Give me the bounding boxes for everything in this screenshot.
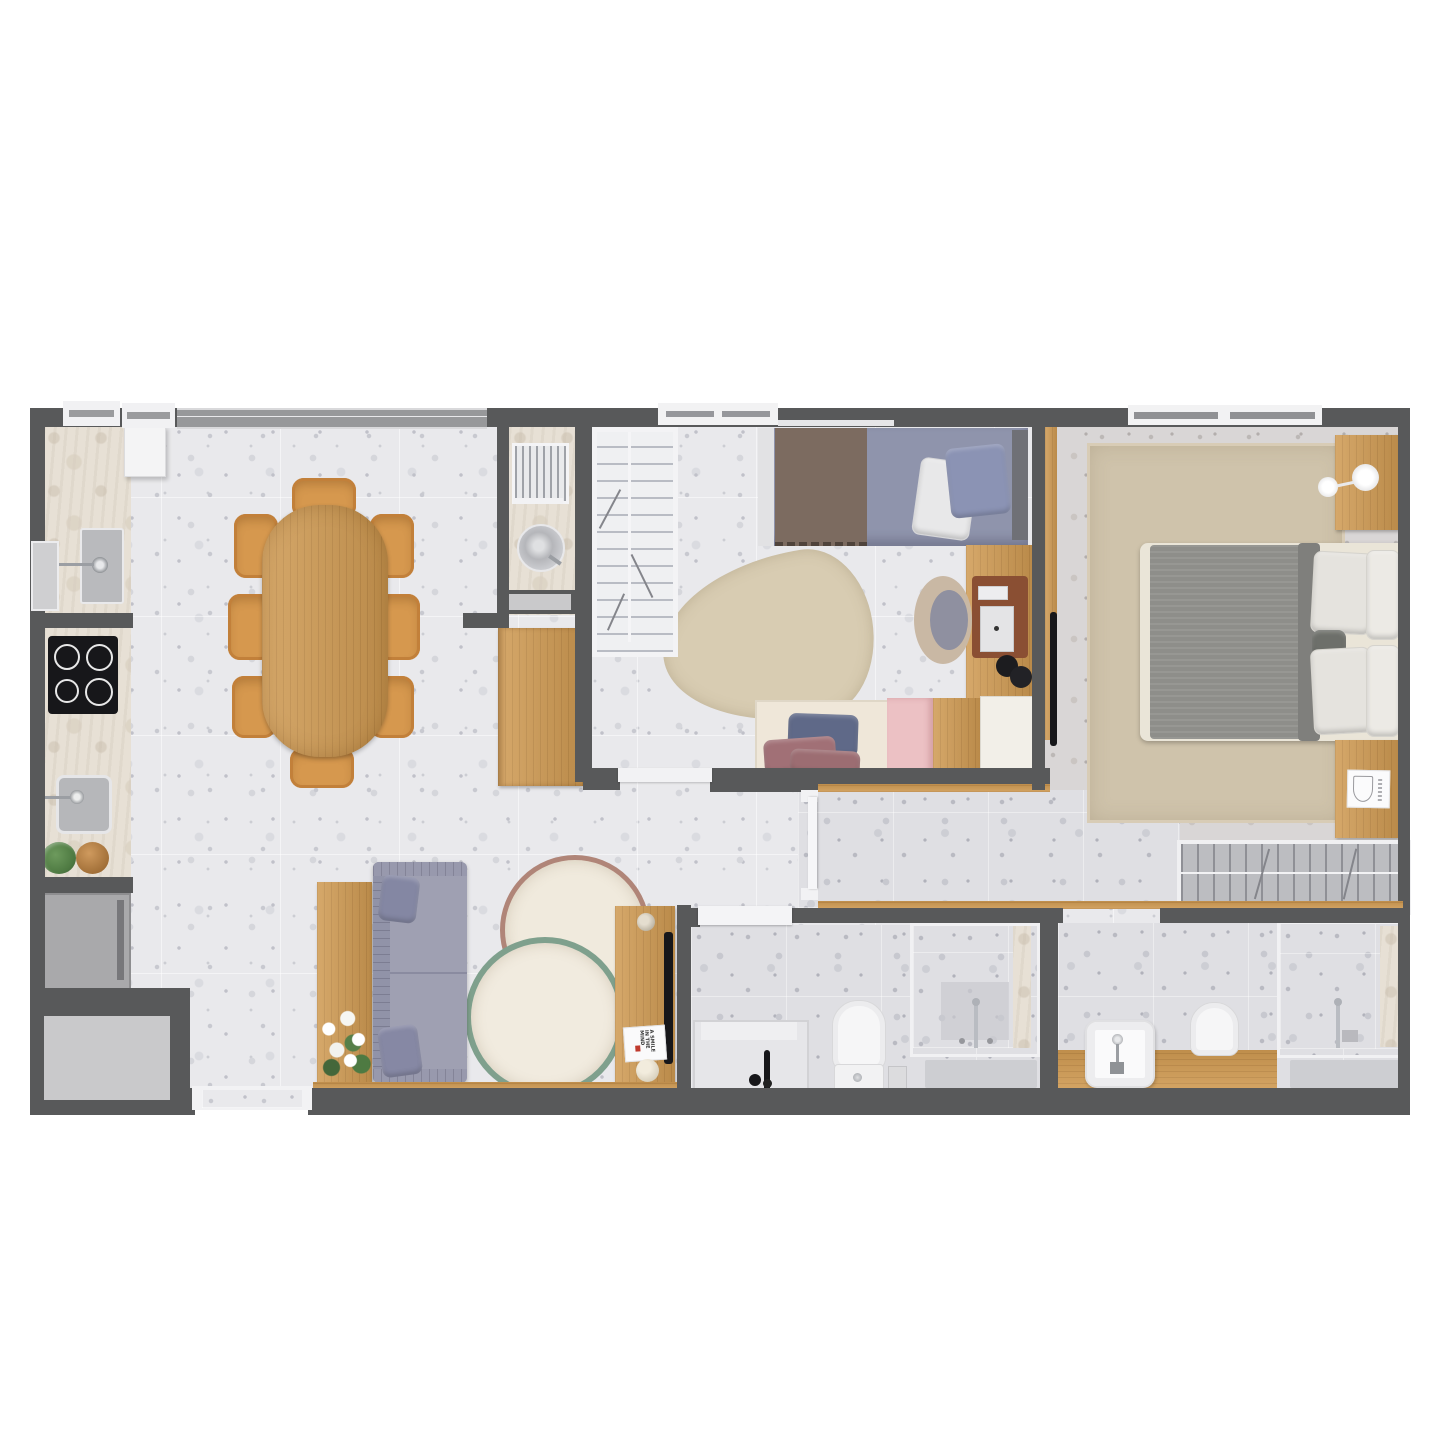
wall-stub-kitchen-2 — [30, 877, 133, 893]
wall-bottom-right — [308, 1088, 1410, 1115]
shelf-diagonal — [599, 489, 621, 529]
window-glass — [127, 412, 170, 419]
kids-bed-throw — [775, 428, 867, 546]
master-pillow — [1310, 646, 1374, 735]
master-pillow — [1366, 645, 1400, 737]
plant-icon — [42, 842, 76, 874]
toilet-2 — [1190, 1002, 1239, 1056]
prep-sink — [56, 775, 112, 834]
wall-hall-bottom-c — [1160, 908, 1410, 923]
wall-right — [1398, 408, 1410, 1110]
toilet — [832, 1000, 886, 1072]
kids-desk-chair-seat — [930, 590, 968, 650]
bathroom-1-door — [698, 906, 792, 925]
sofa-pillow — [377, 1023, 424, 1078]
wardrobe-rail — [1181, 872, 1399, 874]
floor-plan-canvas: A SMILE IN THE MIND — [0, 0, 1440, 1440]
wood-bowl-icon — [76, 842, 109, 874]
wall-stub-kitchen — [30, 613, 133, 628]
kids-pillow-blue — [945, 443, 1012, 519]
vessel-faucet-stem — [1116, 1044, 1119, 1064]
window-glass — [722, 411, 770, 417]
shower-1-handle-icon — [959, 1038, 965, 1044]
drying-rack-base — [513, 498, 563, 504]
wall-bath-divider — [1040, 923, 1058, 1092]
master-pillow — [1310, 550, 1374, 635]
book: A SMILE IN THE MIND — [623, 1025, 667, 1063]
refrigerator-handle — [117, 900, 124, 980]
kids-headboard — [1012, 430, 1028, 540]
master-window — [1128, 405, 1322, 425]
burner-icon — [55, 679, 79, 703]
print-card — [1347, 770, 1391, 809]
wall-lamp-icon — [1318, 477, 1338, 497]
kids-window — [658, 403, 778, 425]
shower-1-ledge — [1013, 926, 1031, 1048]
window-glass — [666, 411, 714, 417]
shelf-diagonal — [607, 593, 625, 630]
kids-chest-pink — [887, 698, 933, 774]
bathtub-niche — [701, 1022, 797, 1040]
window-glass — [177, 416, 487, 417]
shower-1-head-icon — [972, 998, 980, 1006]
kids-chest-white — [980, 696, 1034, 776]
wardrobe-garment — [1254, 849, 1270, 900]
wall-laundry-stub — [463, 613, 509, 628]
headphones-icon — [1010, 666, 1032, 688]
tablet-button — [994, 626, 999, 631]
shower-1-enclosure — [910, 923, 1040, 1057]
master-pillow — [1366, 550, 1400, 640]
prep-faucet-icon — [70, 790, 84, 804]
kitchen-faucet-arm — [58, 563, 94, 566]
hall-door-leaf — [808, 797, 817, 889]
shower-2-ledge — [1380, 926, 1398, 1047]
wall-hall-bottom-b — [790, 908, 1063, 923]
sofa-pillow — [377, 874, 420, 924]
kitchen-faucet-icon — [92, 557, 108, 573]
burner-icon — [54, 644, 80, 670]
wall-living-bath — [677, 905, 691, 1093]
dining-table — [262, 505, 388, 757]
sofa — [373, 862, 467, 1083]
sideboard-cabinet — [498, 628, 583, 786]
wall-kids-bottom-a — [583, 768, 620, 790]
shower-2-column — [1336, 1004, 1340, 1048]
kids-bed — [758, 428, 1028, 546]
kitchen-window-b — [122, 403, 175, 428]
kids-bed-sheet — [758, 428, 774, 546]
shower-1-column — [974, 1004, 978, 1048]
master-bed — [1140, 543, 1398, 741]
master-blanket — [1150, 545, 1310, 739]
wall-laundry-right — [575, 420, 592, 782]
shelf-diagonal — [631, 554, 654, 598]
burner-icon — [85, 678, 113, 706]
window-glass — [1134, 412, 1218, 419]
shower-1-handle-icon — [987, 1038, 993, 1044]
bath-1-mat — [925, 1060, 1037, 1088]
book-title: A SMILE IN THE MIND — [638, 1029, 655, 1060]
tub-knob-icon — [749, 1074, 761, 1086]
wall-lamp-icon — [1352, 464, 1379, 491]
print-text-lines — [1378, 777, 1382, 801]
shower-2-enclosure — [1277, 921, 1407, 1058]
book-accent — [635, 1045, 640, 1051]
shelf-divider — [628, 432, 631, 642]
hall-door-jamb — [801, 888, 818, 900]
kids-window-sill — [778, 420, 894, 426]
desk-tray-icon — [978, 586, 1008, 600]
print-sketch — [1353, 776, 1373, 802]
window-glass — [69, 410, 114, 417]
round-rug-sage — [465, 937, 625, 1097]
flower-bouquet-icon — [318, 1008, 372, 1078]
kids-chest-wood — [933, 698, 980, 774]
sofa-seat-seam — [390, 972, 467, 974]
wall-kids-master — [1032, 420, 1045, 790]
service-shaft-panel — [44, 1016, 170, 1100]
shower-2-drain — [1342, 1030, 1358, 1042]
wardrobe-garment — [1343, 849, 1358, 900]
dining-window — [177, 408, 487, 429]
kids-room-door — [618, 768, 712, 782]
kitchen-tall-cabinet — [124, 426, 166, 477]
kids-closet-shelving — [592, 427, 678, 657]
left-wall-window — [31, 541, 59, 611]
master-tv — [1050, 612, 1057, 746]
prep-faucet-icon — [42, 796, 72, 799]
decor-ball-icon — [636, 1059, 659, 1082]
window-glass — [1230, 412, 1315, 419]
toilet-flush-icon — [853, 1073, 862, 1082]
bath-2-mat — [1290, 1060, 1403, 1088]
shower-2-head-icon — [1334, 998, 1342, 1006]
vessel-faucet-base — [1110, 1062, 1124, 1074]
wall-laundry-left — [497, 420, 509, 613]
drying-rack — [512, 443, 569, 504]
burner-icon — [86, 644, 113, 671]
kitchen-window-a — [63, 401, 120, 426]
wall-kids-wood-cap — [818, 784, 1050, 792]
vessel-sink — [1085, 1020, 1155, 1088]
entry-door-opening — [202, 1090, 302, 1108]
paper-holder-icon — [888, 1066, 907, 1090]
laundry-pocket-door-panel — [505, 594, 571, 610]
speaker-icon — [637, 913, 655, 931]
tub-knob-icon — [763, 1079, 772, 1088]
